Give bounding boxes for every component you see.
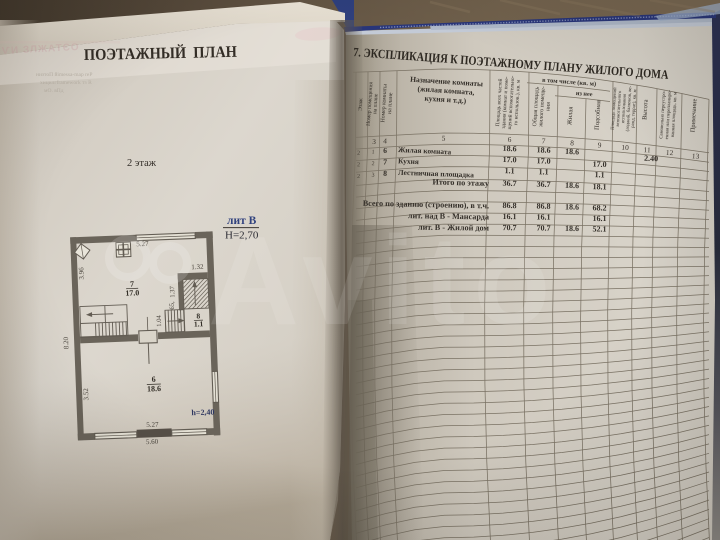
svg-text:Avito: Avito [208, 210, 558, 351]
